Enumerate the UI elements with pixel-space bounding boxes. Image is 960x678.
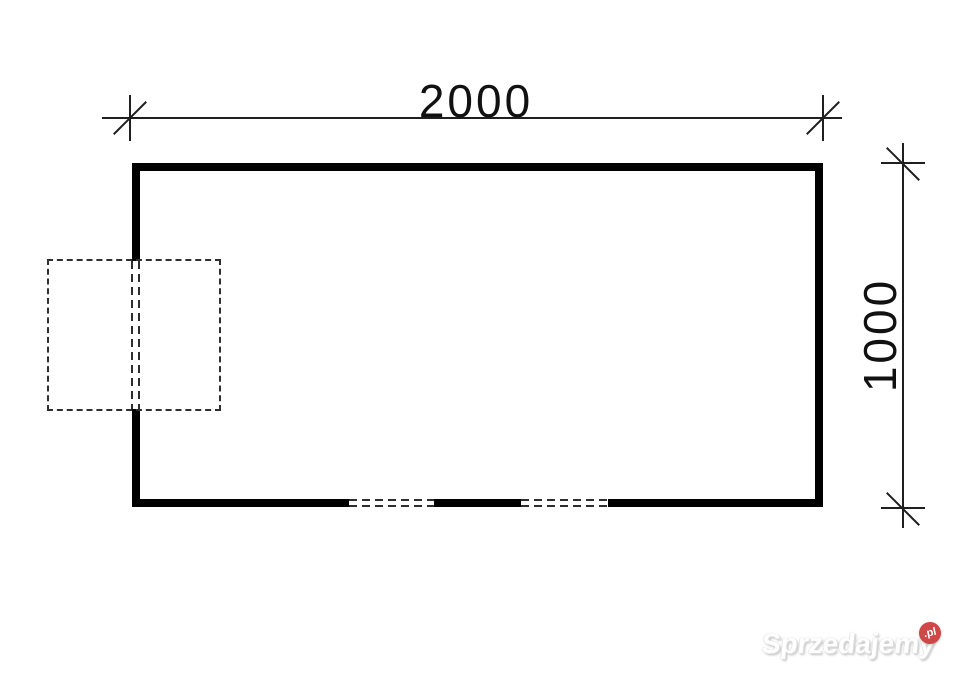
watermark-brand-text: Sprzedajemy [760, 628, 936, 660]
wall-left-lower-segment [132, 409, 140, 507]
window-symbol-1-inner-line [349, 505, 434, 507]
window-symbol-1-outer-line [349, 499, 434, 501]
left-door-dashed-outline [47, 259, 221, 411]
wall-bottom-segment-1 [132, 499, 349, 507]
dimension-width-label: 2000 [386, 79, 566, 123]
window-symbol-2-inner-line [521, 505, 608, 507]
wall-left-upper-segment [132, 163, 140, 261]
window-symbol-2-outer-line [521, 499, 608, 501]
wall-top [132, 163, 823, 171]
wall-bottom-segment-3 [608, 499, 823, 507]
wall-bottom-segment-2 [434, 499, 521, 507]
dimension-height-label: 1000 [858, 253, 902, 417]
wall-right [815, 163, 823, 507]
drawing-canvas: 2000 1000 Sprzedajemy .pl [0, 0, 960, 678]
watermark: Sprzedajemy .pl [762, 620, 957, 672]
